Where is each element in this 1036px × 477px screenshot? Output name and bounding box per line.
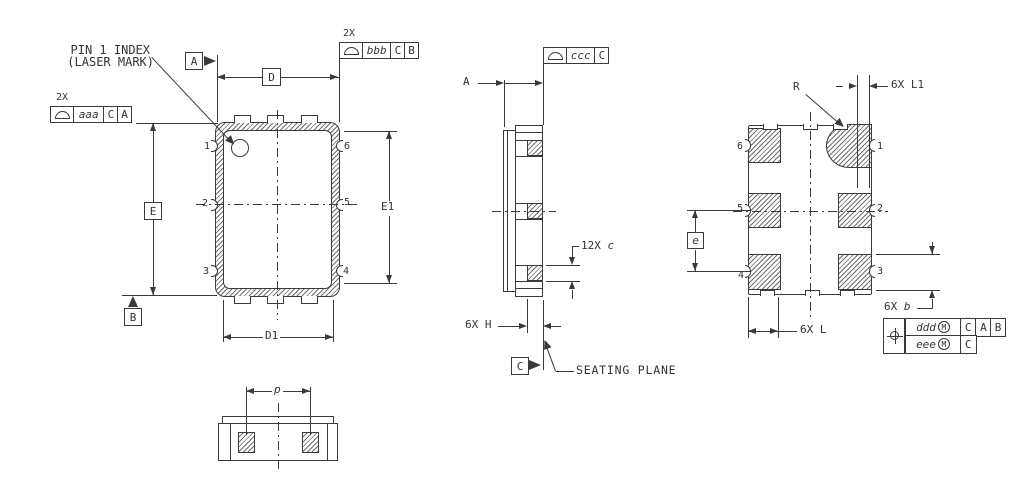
bottom-view-centerline-horizontal xyxy=(733,211,888,212)
pad-1-rounded xyxy=(826,124,872,168)
dim-p-label: p xyxy=(272,384,283,396)
pin-number: 2 xyxy=(877,203,883,214)
side-view-pad xyxy=(527,140,543,156)
seating-plane-leader xyxy=(544,341,556,371)
arrowhead xyxy=(302,388,310,394)
fcf-bbb-qty: 2X xyxy=(343,28,355,39)
dim-b-qty: 6X xyxy=(884,300,897,313)
arrowhead xyxy=(569,281,575,289)
dimension-line-E xyxy=(153,123,154,203)
castellation-notch xyxy=(336,265,343,277)
arrowhead xyxy=(519,323,527,329)
pin-number: 3 xyxy=(203,266,209,277)
top-view-centerline-vertical xyxy=(277,110,278,320)
arrowhead xyxy=(929,290,935,298)
dimension-line-L1 xyxy=(836,86,843,87)
arrowhead xyxy=(692,263,698,271)
extension-line xyxy=(136,123,218,124)
pad-3 xyxy=(838,254,872,290)
pad-4 xyxy=(748,254,781,290)
dim-E-label: E xyxy=(144,202,162,220)
fcf-bbb-value: bbb xyxy=(362,42,392,59)
pin1-index-label-line2: (LASER MARK) xyxy=(50,56,154,69)
arrowhead xyxy=(849,83,857,89)
datum-a-flag: A xyxy=(185,52,203,70)
arrowhead xyxy=(770,328,778,334)
fcf-bbb: bbb C B xyxy=(339,42,419,59)
fcf-position-row1-value: dddM xyxy=(905,318,961,337)
castellation-notch xyxy=(763,124,778,130)
pin-number: 4 xyxy=(343,266,349,277)
dim-H-label: 6X H xyxy=(465,319,492,331)
front-view-castellation-line xyxy=(230,424,231,460)
side-view-seam-line xyxy=(516,219,542,220)
arrowhead xyxy=(541,339,552,350)
fcf-position-row1: dddM C A B xyxy=(905,318,1006,337)
dim-L1-letter: L1 xyxy=(911,78,924,91)
extension-line xyxy=(546,281,580,282)
extension-line xyxy=(876,254,940,255)
dim-L1-qty: 6X xyxy=(891,78,904,91)
pin-number: 2 xyxy=(202,198,208,209)
arrowhead xyxy=(150,287,156,295)
datum-c-triangle xyxy=(529,360,541,370)
datum-c-flag: C xyxy=(511,357,529,375)
dim-L-letter: L xyxy=(820,323,827,336)
arrowhead xyxy=(748,328,756,334)
mmc-modifier-icon: M xyxy=(938,338,950,350)
pin-number: 6 xyxy=(737,141,743,152)
dimension-line-H xyxy=(498,326,519,327)
dim-H-qty: 6X xyxy=(465,318,478,331)
dim-L-qty: 6X xyxy=(800,323,813,336)
fcf-position-row2-value: eeeM xyxy=(905,335,961,354)
dim-b-label: 6X b xyxy=(884,301,911,313)
castellation-notch xyxy=(840,290,855,296)
fcf-ccc: ccc C xyxy=(543,47,609,64)
extension-line xyxy=(217,55,218,122)
dimension-line-H xyxy=(551,326,561,327)
arrowhead xyxy=(869,83,877,89)
dim-L-label: 6X L xyxy=(800,324,827,336)
extension-line xyxy=(687,271,750,272)
arrowhead xyxy=(217,74,225,80)
extension-line xyxy=(339,58,340,122)
fcf-position-row1-ref2: A xyxy=(975,318,991,337)
dimension-line-E xyxy=(153,219,154,295)
dim-e-label: e xyxy=(687,232,704,249)
castellation-notch xyxy=(760,290,775,296)
top-view-lid-bump xyxy=(267,296,284,304)
front-view-pad xyxy=(238,432,255,453)
front-view-castellation-line xyxy=(327,424,328,460)
datum-b-flag: B xyxy=(124,308,142,326)
extension-line xyxy=(546,265,580,266)
fcf-aaa-value: aaa xyxy=(73,106,105,123)
arrowhead xyxy=(569,257,575,265)
side-view-seam-line xyxy=(516,281,542,282)
extension-line xyxy=(333,300,334,342)
profile-of-surface-icon xyxy=(543,47,567,64)
dimension-line-b xyxy=(932,299,933,309)
fcf-ccc-value: ccc xyxy=(566,47,596,64)
dim-L1-label: 6X L1 xyxy=(891,79,924,91)
extension-line xyxy=(504,80,505,127)
dimension-line-L1 xyxy=(877,86,888,87)
top-view-lid-bump xyxy=(234,115,251,123)
seating-plane-label: SEATING PLANE xyxy=(576,364,676,377)
package-outline-drawing: 1 2 3 6 5 4 PIN 1 INDEX (LASER MARK) D A… xyxy=(0,0,1036,477)
pin-number: 6 xyxy=(344,141,350,152)
arrowhead xyxy=(386,275,392,283)
dimension-line-E1 xyxy=(389,216,390,283)
extension-line xyxy=(246,387,247,435)
dim-H-letter: H xyxy=(485,318,492,331)
mmc-modifier-icon: M xyxy=(938,321,950,333)
side-view-seam-line xyxy=(516,156,542,157)
fcf-ccc-ref1: C xyxy=(594,47,609,64)
arrowhead xyxy=(330,74,338,80)
fcf-position-row2-ref1: C xyxy=(960,335,977,354)
fcf-aaa: aaa C A xyxy=(50,106,132,123)
pin-number: 3 xyxy=(877,266,883,277)
dimension-line-c xyxy=(572,290,573,299)
seating-plane-line xyxy=(543,300,544,370)
datum-b-triangle xyxy=(128,296,138,307)
arrowhead xyxy=(929,246,935,254)
extension-line xyxy=(857,75,858,188)
dimension-line-A xyxy=(478,83,497,84)
arrowhead xyxy=(150,123,156,131)
fcf-aaa-qty: 2X xyxy=(56,92,68,103)
fcf-position: dddM C A B eeeM C xyxy=(883,318,1006,354)
side-view-centerline xyxy=(492,211,556,212)
fcf-position-row1-ref3: B xyxy=(990,318,1006,337)
tolerance-value: eee xyxy=(916,338,936,351)
dim-b-letter: b xyxy=(904,300,911,313)
castellation-notch xyxy=(869,265,875,278)
pin-number: 5 xyxy=(737,203,743,214)
extension-line xyxy=(344,283,397,284)
dimension-line-c xyxy=(572,246,573,257)
arrowhead xyxy=(535,80,543,86)
position-symbol-icon xyxy=(883,318,905,354)
fcf-bbb-ref2: B xyxy=(404,42,419,59)
dim-D1-label: D1 xyxy=(263,330,280,342)
extension-line xyxy=(543,64,544,125)
dimension-line-A xyxy=(505,83,535,84)
front-view-centerline xyxy=(278,403,279,471)
arrowhead xyxy=(692,210,698,218)
castellation-notch xyxy=(336,140,343,152)
castellation-notch xyxy=(336,199,343,211)
side-view-pad xyxy=(527,265,543,281)
fcf-position-row2: eeeM C xyxy=(905,335,1006,354)
arrowhead xyxy=(496,80,504,86)
dim-A-label: A xyxy=(463,76,470,88)
extension-line xyxy=(869,75,870,188)
dim-c-letter: c xyxy=(608,239,615,252)
top-view-lid-bump xyxy=(234,296,251,304)
dim-E1-label: E1 xyxy=(379,201,396,213)
arrowhead xyxy=(223,334,231,340)
front-view-pad xyxy=(302,432,319,453)
arrowhead xyxy=(543,323,551,329)
fcf-position-row1-ref1: C xyxy=(960,318,977,337)
dim-R-label: R xyxy=(793,81,800,93)
pin-number: 1 xyxy=(204,141,210,152)
extension-line xyxy=(527,299,528,333)
profile-of-surface-icon xyxy=(339,42,363,59)
fcf-aaa-ref2: A xyxy=(117,106,132,123)
datum-a-triangle xyxy=(204,56,216,66)
arrowhead xyxy=(246,388,254,394)
dim-D-label: D xyxy=(262,68,281,86)
dim-c-label: 12X c xyxy=(581,240,614,252)
top-view-lid-bump xyxy=(301,115,318,123)
pin-number: 1 xyxy=(877,141,883,152)
side-view-seam-line xyxy=(516,132,542,133)
side-view-seam-line xyxy=(516,288,542,289)
seating-plane-leader xyxy=(556,371,574,372)
dimension-line-E1 xyxy=(389,131,390,201)
bottom-view-centerline-vertical xyxy=(810,112,811,320)
pin1-leader-line xyxy=(151,57,233,144)
castellation-notch xyxy=(805,290,820,296)
profile-of-surface-icon xyxy=(50,106,74,123)
top-view-lid-bump xyxy=(301,296,318,304)
dimension-line-L xyxy=(778,331,797,332)
dim-c-qty: 12X xyxy=(581,239,601,252)
tolerance-value: ddd xyxy=(916,321,936,334)
top-view-centerline-horizontal xyxy=(196,204,358,205)
arrowhead xyxy=(325,334,333,340)
top-view-lid-bump xyxy=(267,115,284,123)
pin-number: 5 xyxy=(344,197,350,208)
pad-6 xyxy=(748,128,781,163)
arrowhead xyxy=(386,131,392,139)
leader-elbow xyxy=(917,308,933,309)
extension-line xyxy=(310,387,311,435)
leader-elbow xyxy=(572,246,579,247)
